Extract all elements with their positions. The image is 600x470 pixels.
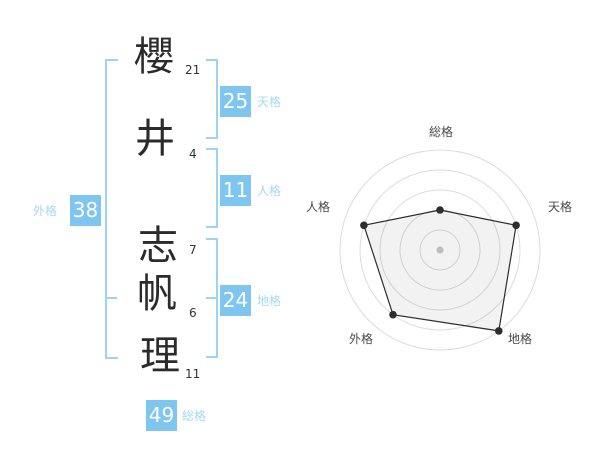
tenkaku-bracket-line (216, 59, 218, 139)
gaikaku-label: 外格 (33, 204, 57, 218)
gaikaku-bracket-line (105, 59, 107, 359)
name-char-3: 志 (136, 226, 180, 266)
gaikaku-bracket-tick-top (105, 59, 118, 61)
jinkaku-value-box: 11 (220, 175, 251, 206)
name-analysis-diagram: 櫻 井 志 帆 理 21 4 7 6 11 25 天格 11 人格 24 地格 … (0, 0, 600, 470)
chikaku-bracket-line (216, 238, 218, 358)
radar-axis-chikaku: 地格 (500, 332, 540, 346)
jinkaku-bracket-tick-bottom (206, 226, 218, 228)
chikaku-bracket-tick-bottom (206, 356, 218, 358)
gaikaku-value-box: 38 (70, 195, 101, 226)
gaikaku-bracket-tick-mid (105, 297, 117, 299)
gaikaku-bracket-tick-bottom (105, 357, 118, 359)
tenkaku-bracket-tick-top (206, 59, 218, 61)
soukaku-value-box: 49 (146, 400, 177, 431)
chikaku-value-box: 24 (220, 285, 251, 316)
radar-axis-jinkaku: 人格 (298, 200, 338, 214)
name-char-1: 櫻 (132, 37, 176, 77)
stroke-count-2: 4 (189, 148, 197, 160)
chikaku-bracket-tick-top (206, 238, 218, 240)
name-char-5: 理 (138, 336, 182, 376)
chikaku-bracket-tick-mid (206, 297, 216, 299)
stroke-count-3: 7 (189, 244, 197, 256)
stroke-count-5: 11 (185, 368, 200, 380)
stroke-count-4: 6 (189, 307, 197, 319)
tenkaku-value-box: 25 (220, 86, 251, 117)
chikaku-label: 地格 (257, 294, 281, 308)
radar-data-polygon (360, 206, 520, 335)
radar-axis-tenkaku: 天格 (540, 200, 580, 214)
tenkaku-label: 天格 (257, 95, 281, 109)
tenkaku-bracket-tick-bottom (206, 137, 218, 139)
jinkaku-label: 人格 (257, 184, 281, 198)
jinkaku-bracket-line (216, 148, 218, 228)
name-char-2: 井 (133, 119, 177, 159)
radar-vertex-dot (436, 206, 444, 214)
radar-axis-soukaku: 総格 (421, 125, 461, 139)
radar-axis-gaikaku: 外格 (341, 332, 381, 346)
radar-vertex-dot (389, 311, 397, 319)
name-char-4: 帆 (135, 274, 179, 314)
radar-value-polygon (364, 210, 516, 331)
jinkaku-bracket-tick-top (206, 148, 218, 150)
soukaku-label: 総格 (182, 409, 206, 423)
radar-vertex-dot (512, 222, 520, 230)
stroke-count-1: 21 (185, 64, 200, 76)
radar-vertex-dot (360, 222, 368, 230)
